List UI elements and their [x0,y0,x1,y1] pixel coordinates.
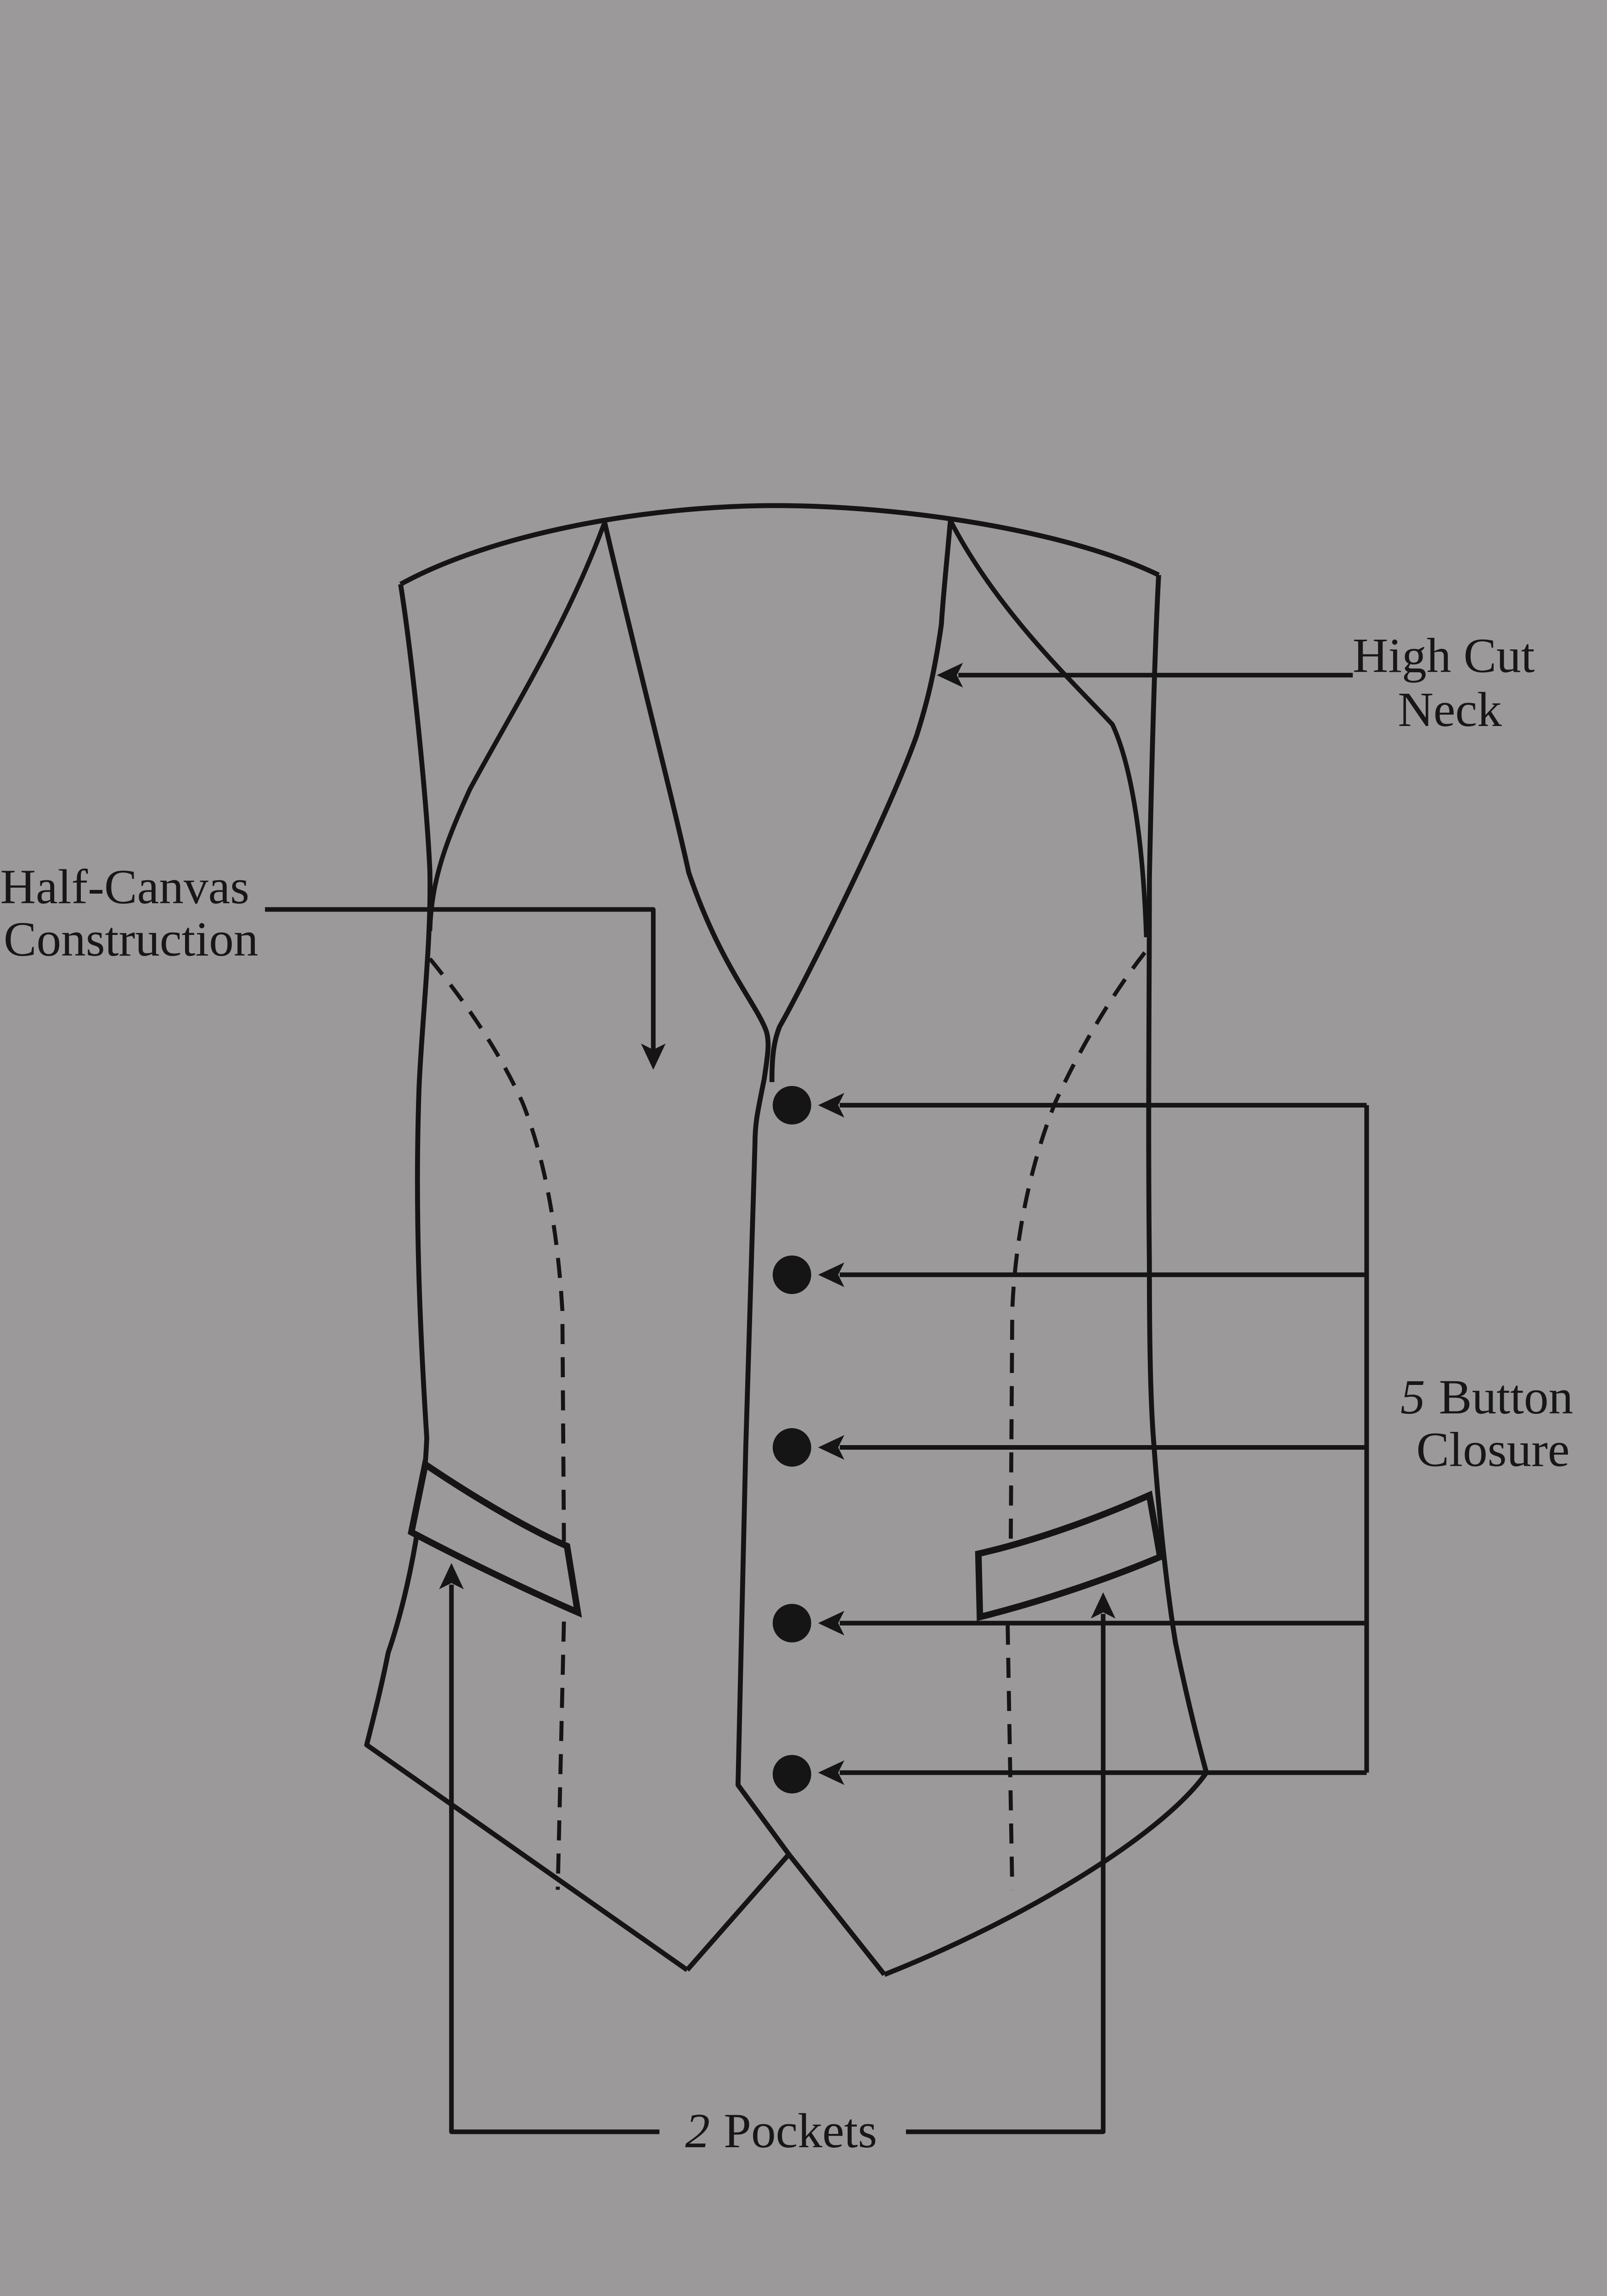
left-welt-pocket [411,1464,578,1612]
vest-diagram-canvas: High Cut Neck Half-Canvas Construction 5… [0,0,1607,2296]
right-princess-seam-dashed [1008,952,1145,1890]
button-closure-label-line1: 5Button [1400,1370,1573,1424]
back-neck-curve [400,506,1158,584]
vest-outline-group [367,506,1207,1975]
neckline-left-edge-centre-front [604,519,789,1854]
pockets-label-line: 2Pockets [685,2104,877,2158]
button-closure-label-line2: Closure [1416,1422,1570,1477]
high-cut-neck-label-line1: High Cut [1353,629,1535,683]
button-5 [773,1755,811,1794]
half-canvas-leader-line [265,909,653,1049]
label-group: High Cut Neck Half-Canvas Construction 5… [0,629,1586,2158]
button-group [773,1086,811,1794]
button-4 [773,1604,811,1643]
left-side-outline [367,584,687,1970]
pockets-right-leader-line [906,1614,1103,2132]
pockets-count: 2 [685,2104,710,2158]
high-cut-neck-label: High Cut Neck [1353,629,1547,737]
half-canvas-label-line1: Half-Canvas [0,860,250,914]
right-welt-pocket [978,1495,1160,1617]
high-cut-neck-label-line2: Neck [1398,682,1502,737]
button-closure-word: Button [1439,1370,1573,1424]
pockets-left-leader-line [451,1585,659,2132]
button-closure-label: 5Button Closure [1400,1370,1585,1477]
button-closure-count: 5 [1400,1370,1425,1424]
half-canvas-label: Half-Canvas Construction [0,860,262,967]
neckline-right-edge [772,518,950,1082]
button-2 [773,1255,811,1294]
pockets-word: Pockets [724,2104,877,2158]
button-1 [773,1086,811,1125]
pockets-label: 2Pockets [685,2104,877,2158]
front-hem-notch [687,1854,885,1975]
vest-feature-diagram: High Cut Neck Half-Canvas Construction 5… [0,0,1607,2296]
button-3 [773,1428,811,1467]
right-armhole-seam [950,521,1146,937]
half-canvas-label-line2: Construction [4,912,258,967]
left-armhole-seam [430,524,604,931]
